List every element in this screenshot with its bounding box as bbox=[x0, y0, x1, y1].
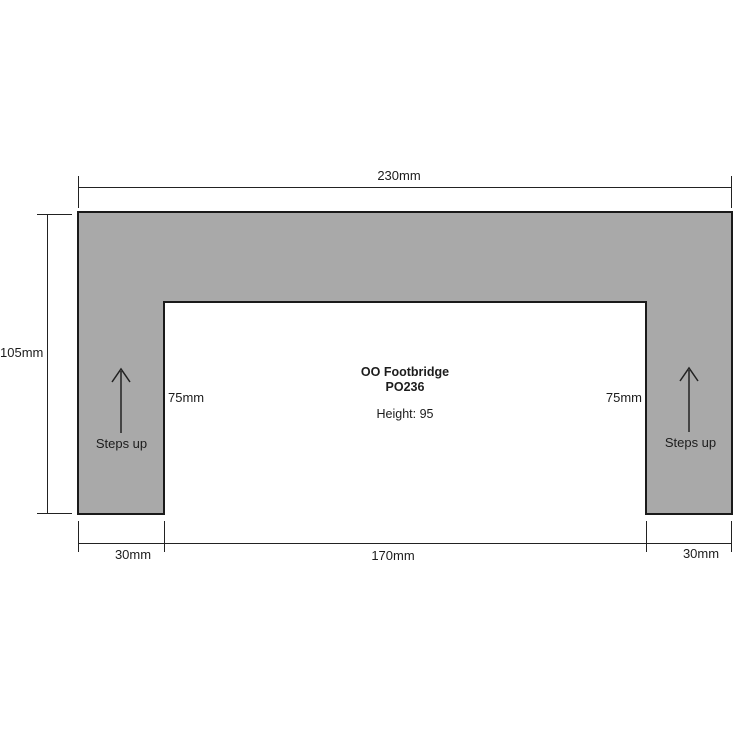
total-depth-label: 105mm bbox=[0, 346, 37, 360]
right-leg-depth-label: 75mm bbox=[582, 391, 642, 405]
left-height-dimension bbox=[37, 214, 72, 514]
product-title-block: OO Footbridge PO236 Height: 95 bbox=[305, 365, 505, 422]
product-height-note: Height: 95 bbox=[305, 407, 505, 422]
right-leg-width-label: 30mm bbox=[671, 547, 731, 561]
left-leg-depth-label: 75mm bbox=[168, 391, 204, 405]
inner-span-label: 170mm bbox=[353, 549, 433, 563]
product-title: OO Footbridge bbox=[305, 365, 505, 380]
product-code: PO236 bbox=[305, 380, 505, 395]
total-width-label: 230mm bbox=[349, 169, 449, 183]
right-steps-up-label: Steps up bbox=[660, 436, 721, 450]
footprint-shape bbox=[78, 212, 732, 514]
footbridge-footprint-diagram: 230mm 105mm 30mm 170mm 30mm 75mm 75mm St… bbox=[0, 0, 734, 734]
left-steps-up-label: Steps up bbox=[91, 437, 152, 451]
left-leg-width-label: 30mm bbox=[103, 548, 163, 562]
